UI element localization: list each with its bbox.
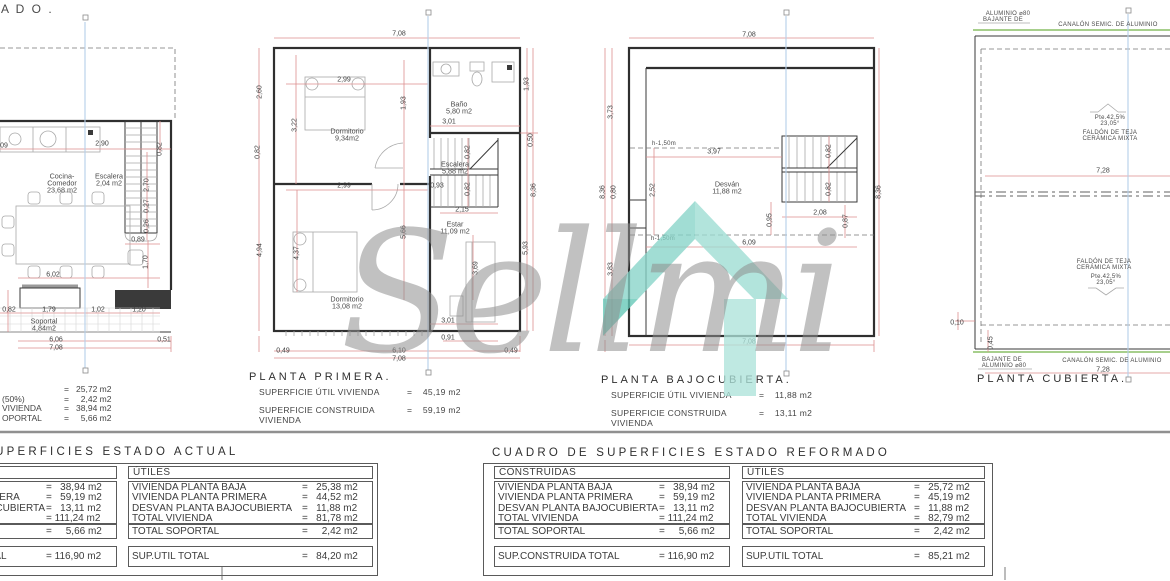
dim-label: 3,83 (608, 262, 615, 276)
dim-label: 0,82 (255, 145, 262, 159)
table-col-utiles: ÚTILES VIVIENDA PLANTA BAJA= 25,72 m2VIV… (742, 466, 985, 574)
soportal-row: TOTAL SOPORTAL = 2,42 m2 (128, 523, 373, 539)
dim-label: 0,45 (988, 336, 995, 350)
dim-label: 0,82 (157, 142, 164, 156)
soportal-row: TOTAL SOPORTAL = 5,66 m2 (494, 523, 730, 539)
dim-label: 2,90 (95, 141, 109, 148)
dim-label: 09 (0, 143, 8, 150)
row-value: = 45,19 m2 (407, 387, 461, 405)
row-value: = 11,88 m2 (759, 390, 812, 408)
room-label: 11,88 m2 (712, 187, 741, 194)
column-rows: VIVIENDA PLANTA BAJA= 25,72 m2VIVIENDA P… (742, 481, 985, 525)
room-label: 4,84m2 (32, 324, 56, 331)
row-value: = 38,94 m2 (64, 403, 112, 413)
row-label: VIVIENDA (2, 403, 64, 413)
dim-label: 0,89 (131, 237, 145, 244)
table-row: = 25,72 m2 (2, 384, 112, 394)
dim-label: 0,50 (528, 133, 535, 147)
row-label: SUPERFICIE CONSTRUIDA VIVIENDA (611, 408, 759, 426)
note-label: CERÁMICA MIXTA (1082, 136, 1137, 142)
column-header: ÚTILES (742, 466, 985, 479)
room-label: 2,04 m2 (96, 179, 122, 186)
dim-label: 8,36 (531, 183, 538, 197)
dim-label: 8,36 (876, 185, 883, 199)
table-title-reformado: CUADRO DE SUPERFICIES ESTADO REFORMADO (492, 447, 890, 459)
dim-label: 0,91 (441, 335, 455, 342)
dim-label: 0,10 (950, 320, 964, 327)
table-estado-actual: CONSTRUIDAS VIVIENDA PLANTA BAJA= 38,94 … (0, 463, 378, 576)
dim-label: 2,08 (813, 210, 827, 217)
dim-label: 1,93 (524, 77, 531, 91)
dim-label: 5,93 (523, 241, 530, 255)
row-label: DESVÁN PLANTA BAJOCUBIERTA (0, 504, 46, 514)
total-row: SUP.ÚTIL TOTAL = 84,20 m2 (128, 546, 373, 567)
dim-label: 6,09 (742, 240, 756, 247)
table-col-construidas: CONSTRUIDAS VIVIENDA PLANTA BAJA= 38,94 … (494, 466, 730, 574)
dim-label: 3,01 (441, 318, 455, 325)
column-header: ÚTILES (128, 466, 373, 479)
dim-label: 3,22 (292, 118, 299, 132)
row-label (2, 384, 64, 394)
note-label: ALUMINIO ⌀80 (982, 363, 1027, 369)
row-label: DESVÁN PLANTA BAJOCUBIERTA (132, 504, 302, 514)
total-row: SUP.ÚTIL TOTAL = 85,21 m2 (742, 546, 985, 567)
plan-title-primera: PLANTA PRIMERA. (249, 371, 461, 383)
dim-label: 3,97 (707, 149, 721, 156)
architectural-sheet: { "sheet": { "partial_title": "A D O ." … (0, 0, 1170, 581)
note-label: CANALÓN SEMIC. DE ALUMINIO (1058, 22, 1157, 28)
dim-label: 1,79 (42, 307, 56, 314)
dim-label: 2,52 (650, 183, 657, 197)
dim-label: 4,37 (294, 246, 301, 260)
dim-label: 0,49 (504, 348, 518, 355)
dim-label: 0,49 (276, 348, 290, 355)
dim-label: 7,08 (392, 31, 406, 38)
total-row: SUP.CONSTRUIDA TOTAL = 116,90 m2 (494, 546, 730, 567)
table-estado-reformado: CONSTRUIDAS VIVIENDA PLANTA BAJA= 38,94 … (483, 463, 993, 576)
dim-label: 0,26 (144, 219, 151, 233)
dim-label: 1,70 (143, 255, 150, 269)
note-label: h-1,50m (652, 141, 676, 147)
table-row: SUPERFICIE ÚTIL VIVIENDA= 11,88 m2 (611, 390, 812, 408)
row-label: DESVÁN PLANTA BAJOCUBIERTA (746, 504, 914, 514)
table-title-actual: CUADRO DE SUPERFICIES ESTADO ACTUAL (0, 446, 238, 458)
column-header: CONSTRUIDAS (0, 466, 117, 479)
caption-planta-primera: PLANTA PRIMERA. SUPERFICIE ÚTIL VIVIENDA… (249, 371, 461, 423)
row-label: VIVIENDA PLANTA PRIMERA (746, 493, 914, 503)
room-label: 9,34m2 (335, 134, 359, 141)
dim-label: 0,87 (843, 214, 850, 228)
row-label: OPORTAL (2, 413, 64, 423)
dim-label: 2,99 (337, 183, 351, 190)
dim-label: 0,82 (465, 182, 472, 196)
row-value: = 25,72 m2 (64, 384, 112, 394)
caption-planta-bajocubierta: PLANTA BAJOCUBIERTA. SUPERFICIE ÚTIL VIV… (601, 374, 812, 426)
column-rows: VIVIENDA PLANTA BAJA= 38,94 m2VIVIENDA P… (494, 481, 730, 525)
column-rows: VIVIENDA PLANTA BAJA= 38,94 m2VIVIENDA P… (0, 481, 117, 525)
row-label: VIVIENDA PLANTA BAJA (132, 483, 302, 493)
total-row: SUP.CONSTRUIDA TOTAL = 116,90 m2 (0, 546, 117, 567)
row-value: = 5,66 m2 (64, 413, 112, 423)
row-value: = 2,42 m2 (64, 394, 112, 404)
dim-label: 8,36 (600, 185, 607, 199)
column-rows: VIVIENDA PLANTA BAJA= 25,38 m2VIVIENDA P… (128, 481, 373, 525)
row-label: SUPERFICIE CONSTRUIDA VIVIENDA (259, 405, 407, 423)
column-header: CONSTRUIDAS (494, 466, 730, 479)
dim-label: 6,10 (392, 348, 406, 355)
row-value: = 59,19 m2 (407, 405, 461, 423)
dim-label: 2,60 (257, 85, 264, 99)
table-col-construidas: CONSTRUIDAS VIVIENDA PLANTA BAJA= 38,94 … (0, 466, 117, 574)
note-label: CERÁMICA MIXTA (1076, 265, 1131, 271)
dim-label: 0,27 (144, 199, 151, 213)
dim-label: 3,73 (608, 105, 615, 119)
plan-title-cubierta: PLANTA CUBIERTA. (977, 373, 1127, 385)
row-label: SUPERFICIE ÚTIL VIVIENDA (259, 387, 407, 405)
dim-label: 3,69 (473, 261, 480, 275)
table-row: SUPERFICIE ÚTIL VIVIENDA= 45,19 m2 (259, 387, 461, 405)
row-label: VIVIENDA PLANTA BAJA (746, 483, 914, 493)
row-label: DESVÁN PLANTA BAJOCUBIERTA (498, 504, 659, 514)
note-label: 23,05° (1100, 121, 1119, 127)
table-row: VIVIENDA= 38,94 m2 (2, 403, 112, 413)
dim-label: 0,80 (611, 185, 618, 199)
plan-areas-bajocubierta: SUPERFICIE ÚTIL VIVIENDA= 11,88 m2SUPERF… (611, 390, 812, 426)
note-label: BAJANTE DE (983, 17, 1023, 23)
dim-label: 0,82 (2, 307, 16, 314)
dim-label: 7,08 (392, 356, 406, 363)
dim-label: 0,95 (767, 213, 774, 227)
room-label: 11,09 m2 (440, 227, 469, 234)
row-value: = 13,11 m2 (759, 408, 812, 426)
dim-label: 5,66 (401, 225, 408, 239)
dim-label: 1,93 (401, 96, 408, 110)
dim-label: 7,08 (742, 32, 756, 39)
dim-label: 7,08 (742, 339, 756, 346)
dim-label: 2,70 (144, 178, 151, 192)
table-row: OPORTAL= 5,66 m2 (2, 413, 112, 423)
dim-label: 1,20 (132, 307, 146, 314)
plan-areas-primera: SUPERFICIE ÚTIL VIVIENDA= 45,19 m2SUPERF… (259, 387, 461, 423)
dim-label: 6,02 (46, 272, 60, 279)
room-label: 13,08 m2 (332, 302, 362, 309)
dim-label: 0,82 (826, 182, 833, 196)
room-label: 23,68 m2 (47, 186, 77, 193)
note-label: 23,05° (1096, 280, 1115, 286)
plan-title-bajocubierta: PLANTA BAJOCUBIERTA. (601, 374, 812, 386)
dim-label: 4,94 (257, 243, 264, 257)
row-label: VIVIENDA PLANTA BAJA (0, 483, 46, 493)
dim-label: 7,28 (1096, 168, 1110, 175)
dim-label: 0,82 (465, 145, 472, 159)
row-label: SUPERFICIE ÚTIL VIVIENDA (611, 390, 759, 408)
row-label: VIVIENDA PLANTA PRIMERA (132, 493, 302, 503)
soportal-row: TOTAL SOPORTAL = 5,66 m2 (0, 523, 117, 539)
dim-label: 0,82 (826, 144, 833, 158)
room-label: 5,80 m2 (446, 107, 472, 114)
table-row: SUPERFICIE CONSTRUIDA VIVIENDA= 13,11 m2 (611, 408, 812, 426)
caption-planta-cubierta: PLANTA CUBIERTA. (977, 373, 1127, 385)
dim-label: 2,15 (455, 207, 469, 214)
dim-label: 6,06 (49, 337, 63, 344)
dim-label: 2,99 (337, 77, 351, 84)
note-label: CANALÓN SEMIC. DE ALUMINIO (1062, 358, 1161, 364)
sheet-title-partial: A D O . (1, 2, 54, 16)
row-label: VIVIENDA PLANTA PRIMERA (498, 493, 659, 503)
row-label: VIVIENDA PLANTA BAJA (498, 483, 659, 493)
dim-label: 0,93 (430, 183, 444, 190)
dim-label: 7,08 (49, 345, 63, 352)
room-label: 5,88 m2 (442, 167, 468, 174)
note-label: h-1,50m (651, 236, 675, 242)
table-col-utiles: ÚTILES VIVIENDA PLANTA BAJA= 25,38 m2VIV… (128, 466, 373, 574)
soportal-row: TOTAL SOPORTAL = 2,42 m2 (742, 523, 985, 539)
dim-label: 1,02 (91, 307, 105, 314)
table-row: SUPERFICIE CONSTRUIDA VIVIENDA= 59,19 m2 (259, 405, 461, 423)
dim-label: 3,01 (442, 119, 456, 126)
row-label: (50%) (2, 394, 64, 404)
table-row: (50%)= 2,42 m2 (2, 394, 112, 404)
row-label: VIVIENDA PLANTA PRIMERA (0, 493, 46, 503)
dim-label: 0,51 (157, 337, 171, 344)
planta-baja-summary: = 25,72 m2(50%)= 2,42 m2VIVIENDA= 38,94 … (2, 384, 112, 422)
